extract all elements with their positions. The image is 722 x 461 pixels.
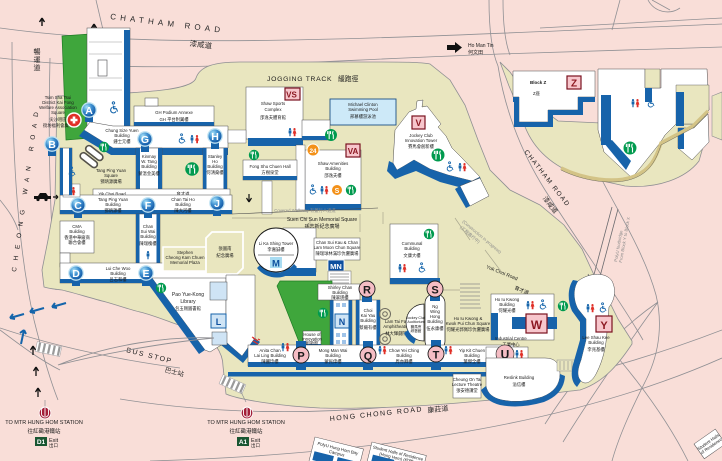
svg-text:JOGGING TRACK: JOGGING TRACK	[267, 76, 332, 83]
svg-text:TO MTR HUNG HOM STATION: TO MTR HUNG HOM STATION	[207, 420, 285, 426]
svg-text:Building: Building	[360, 318, 376, 323]
svg-text:Z: Z	[571, 79, 577, 90]
svg-text:尖沙咀區: 尖沙咀區	[49, 116, 67, 123]
svg-text:Industrial Centre: Industrial Centre	[495, 336, 527, 341]
svg-text:鄧炳源廣場: 鄧炳源廣場	[100, 178, 122, 185]
svg-text:聯合會樓: 聯合會樓	[68, 239, 86, 246]
svg-text:Li Ka Shing Tower: Li Ka Shing Tower	[259, 241, 294, 246]
svg-text:Y: Y	[600, 320, 608, 332]
svg-text:綜藝館: 綜藝館	[411, 328, 422, 333]
svg-text:Building: Building	[325, 353, 341, 358]
svg-text:出口: 出口	[49, 442, 58, 449]
svg-text:Building: Building	[499, 302, 515, 307]
svg-text:方樹泉堂: 方樹泉堂	[261, 169, 279, 176]
svg-text:Square: Square	[104, 173, 118, 178]
svg-text:T: T	[433, 350, 440, 362]
svg-text:R: R	[363, 285, 371, 297]
svg-text:Q: Q	[364, 351, 373, 363]
svg-text:24: 24	[309, 148, 317, 155]
svg-text:Building: Building	[114, 133, 130, 138]
svg-text:D1: D1	[37, 439, 46, 446]
svg-text:Square: Square	[51, 110, 65, 115]
svg-text:F: F	[145, 200, 152, 212]
svg-text:暢運道: 暢運道	[34, 47, 41, 72]
svg-text:Building: Building	[464, 353, 480, 358]
svg-text:蔡繼有樓: 蔡繼有樓	[359, 324, 377, 331]
svg-text:邵逸夫樓: 邵逸夫樓	[324, 172, 342, 179]
svg-text:GH 平台附翼樓: GH 平台附翼樓	[159, 116, 189, 123]
svg-text:P: P	[297, 351, 304, 363]
svg-text:M: M	[272, 259, 280, 270]
svg-text:TO MTR HUNG HOM STATION: TO MTR HUNG HOM STATION	[5, 420, 83, 426]
svg-text:B: B	[48, 139, 56, 151]
svg-text:W: W	[531, 318, 543, 332]
svg-text:Suen Chi Sun Memorial Square: Suen Chi Sun Memorial Square	[287, 217, 358, 223]
svg-text:鄧炳源樓: 鄧炳源樓	[104, 207, 122, 214]
svg-text:何耀光郭佩珍伉儷廣場: 何耀光郭佩珍伉儷廣場	[447, 326, 491, 333]
svg-text:Building: Building	[427, 319, 443, 324]
svg-text:邵逸夫體育館: 邵逸夫體育館	[260, 114, 286, 121]
svg-text:張圖南: 張圖南	[219, 245, 233, 252]
svg-text:溢信樓: 溢信樓	[513, 381, 527, 388]
svg-text:VS: VS	[286, 91, 297, 100]
svg-text:A: A	[85, 105, 93, 117]
svg-text:Amphitheatre: Amphitheatre	[383, 324, 409, 329]
svg-text:林大輝劇院: 林大輝劇院	[385, 330, 407, 337]
svg-text:紀念廣場: 紀念廣場	[216, 252, 234, 259]
svg-text:Building: Building	[175, 202, 191, 207]
svg-text:Lam Moon Chun Square: Lam Moon Chun Square	[314, 245, 361, 250]
svg-text:往紅磡港鐵站: 往紅磡港鐵站	[229, 427, 263, 435]
svg-text:賽馬會創新樓: 賽馬會創新樓	[408, 143, 434, 150]
svg-text:Auditorium: Auditorium	[407, 320, 424, 324]
svg-text:蒙民偉樓: 蒙民偉樓	[324, 358, 342, 365]
svg-text:Block Z: Block Z	[530, 80, 547, 85]
svg-text:Reslink Building: Reslink Building	[504, 375, 535, 380]
svg-text:Building: Building	[588, 340, 604, 345]
svg-text:陳大河樓: 陳大河樓	[174, 207, 192, 214]
svg-text:Complex: Complex	[265, 107, 283, 112]
svg-text:N: N	[339, 317, 346, 327]
svg-text:Building: Building	[141, 164, 157, 169]
svg-text:邢慕樓游泳池: 邢慕樓游泳池	[350, 113, 376, 120]
svg-text:Lecture Theatre: Lecture Theatre	[452, 382, 483, 387]
svg-text:S: S	[335, 188, 340, 195]
svg-text:葉傑全樓: 葉傑全樓	[463, 358, 481, 365]
svg-text:Fong Shu Chuen Hall: Fong Shu Chuen Hall	[249, 164, 290, 169]
svg-text:H: H	[211, 131, 219, 143]
svg-text:Building: Building	[404, 246, 420, 251]
svg-text:鍾士元樓: 鍾士元樓	[113, 138, 131, 145]
svg-text:包玉剛圖書館: 包玉剛圖書館	[175, 305, 201, 312]
svg-text:VA: VA	[348, 147, 359, 156]
svg-text:Library: Library	[180, 299, 196, 305]
svg-text:陳翠瑛樓: 陳翠瑛樓	[331, 294, 349, 301]
svg-text:周亦卿樓: 周亦卿樓	[395, 358, 413, 365]
svg-text:陳麗玲樓: 陳麗玲樓	[261, 358, 279, 365]
svg-text:出口: 出口	[251, 442, 260, 449]
svg-text:J: J	[214, 198, 220, 210]
svg-text:何耀光樓: 何耀光樓	[498, 307, 516, 314]
svg-text:文康大樓: 文康大樓	[403, 252, 421, 259]
svg-text:C: C	[74, 200, 82, 212]
svg-text:A1: A1	[239, 439, 248, 446]
svg-text:呂志和樓: 呂志和樓	[109, 276, 127, 283]
svg-text:Pao Yue-Kong: Pao Yue-Kong	[172, 292, 204, 298]
svg-text:陳瑞槐樓: 陳瑞槐樓	[139, 240, 157, 247]
svg-text:Ho Man Tin: Ho Man Tin	[468, 43, 494, 49]
svg-text:Z座: Z座	[533, 90, 541, 97]
svg-text:Covered Walkway 有蓋行人通道: Covered Walkway 有蓋行人通道	[274, 207, 336, 214]
svg-text:Building: Building	[69, 229, 85, 234]
svg-text:G: G	[141, 134, 149, 146]
svg-text:Building: Building	[396, 353, 412, 358]
svg-text:伍永康樓: 伍永康樓	[426, 325, 444, 332]
svg-text:E: E	[142, 268, 149, 280]
svg-text:V: V	[415, 118, 421, 128]
svg-text:MN: MN	[330, 262, 342, 271]
svg-text:L: L	[216, 317, 222, 327]
svg-text:蒙温金美樓: 蒙温金美樓	[138, 170, 160, 177]
svg-text:Innovation Tower: Innovation Tower	[405, 138, 438, 143]
svg-text:陳瑞球林滿珍伉儷廣場: 陳瑞球林滿珍伉儷廣場	[316, 250, 360, 257]
svg-text:李嘉誠樓: 李嘉誠樓	[267, 246, 285, 253]
svg-text:緩跑徑: 緩跑徑	[338, 74, 359, 83]
svg-text:GH Podium Annexe: GH Podium Annexe	[155, 110, 193, 115]
svg-text:何文田: 何文田	[468, 49, 483, 56]
svg-text:Building: Building	[105, 202, 121, 207]
svg-text:Lai Ling Building: Lai Ling Building	[254, 353, 286, 358]
svg-text:何鴻燊樓: 何鴻燊樓	[206, 169, 224, 176]
svg-text:Swimming Pool: Swimming Pool	[348, 107, 378, 112]
svg-text:Building: Building	[207, 164, 223, 169]
svg-text:Building: Building	[110, 271, 126, 276]
svg-text:Building: Building	[140, 234, 156, 239]
svg-text:S: S	[431, 285, 438, 297]
svg-text:Shaw Sports: Shaw Sports	[261, 101, 285, 106]
svg-text:往紅磡港鐵站: 往紅磡港鐵站	[27, 427, 61, 435]
svg-text:張安德講堂: 張安德講堂	[456, 387, 478, 394]
svg-text:Kwok Pui Chun Square: Kwok Pui Chun Square	[446, 321, 491, 326]
svg-text:Building: Building	[325, 166, 341, 171]
svg-text:D: D	[72, 268, 80, 280]
svg-text:Memorial Plaza: Memorial Plaza	[170, 260, 200, 265]
svg-text:李兆基樓: 李兆基樓	[587, 346, 605, 353]
